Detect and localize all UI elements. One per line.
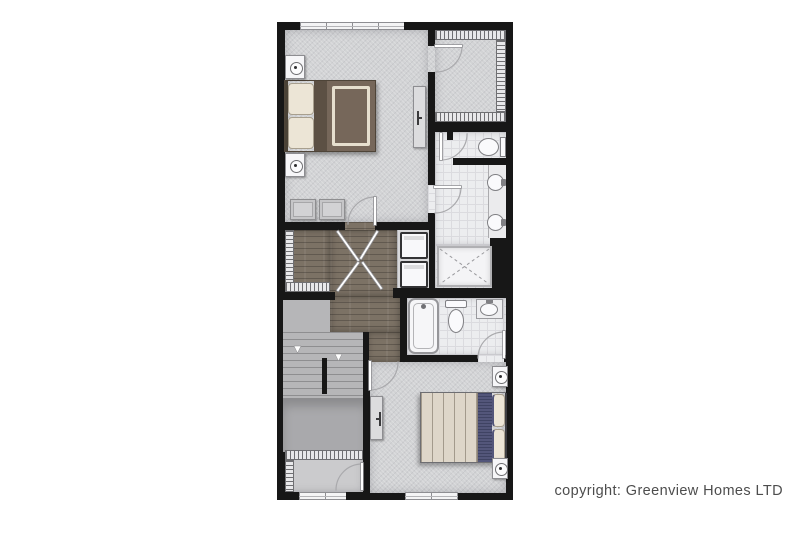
door-walkin-closet (436, 46, 462, 72)
floor-plan (277, 22, 513, 500)
plan-symbols (277, 22, 513, 500)
shower-glass-x-icon (440, 249, 489, 284)
copyright-text: copyright: Greenview Homes LTD (535, 483, 783, 499)
laundry-doors (361, 232, 381, 288)
door-master-bedroom (348, 197, 375, 224)
linen-closet-doors (338, 232, 358, 290)
door-main-bath (435, 187, 461, 213)
door-wc (441, 134, 467, 160)
door-second-bath (478, 332, 504, 358)
door-storage-closet (336, 464, 362, 490)
floor-plan-page: copyright: Greenview Homes LTD (0, 0, 800, 533)
stair-direction-arrows-icon (294, 346, 342, 361)
door-second-bedroom (370, 362, 398, 390)
